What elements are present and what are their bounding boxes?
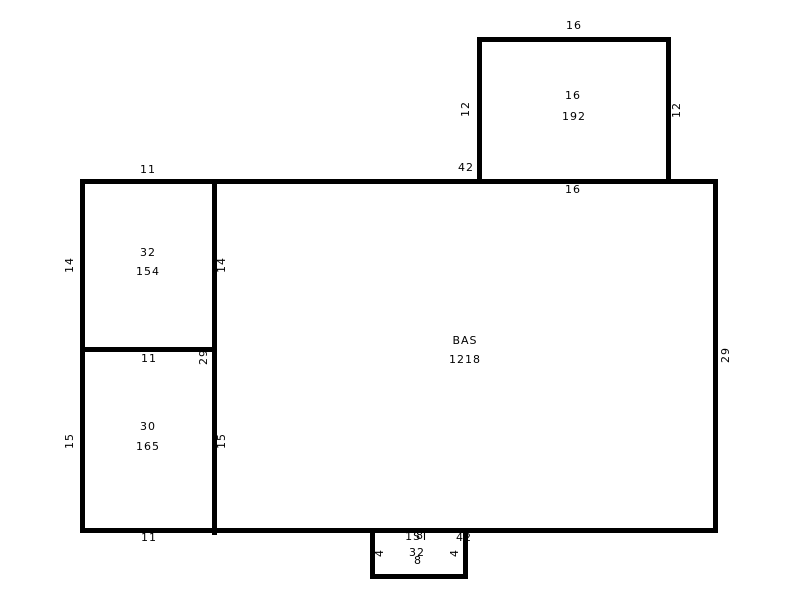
area-value-base: 1218: [449, 354, 481, 366]
dim-left-lower-left: 15: [64, 433, 76, 449]
dim-base-top: 42: [458, 162, 474, 174]
dim-upper-addition-bottom: 16: [565, 184, 581, 196]
wall-bottom-stoop: [370, 574, 468, 579]
dim-left-lower-bottom: 11: [141, 532, 157, 544]
dim-stoop-right: 4: [449, 549, 461, 557]
wall-left-divider: [212, 179, 217, 535]
floor-plan-sketch: 16 12 12 16 192 16 42 BAS 1218 29 29 42 …: [0, 0, 800, 600]
dim-upper-addition-top: 16: [566, 20, 582, 32]
wall-top-main: [80, 179, 718, 184]
area-code-stoop: 1ST: [405, 531, 429, 543]
area-code-left-upper: 32: [140, 247, 156, 259]
dim-left-upper-top: 11: [140, 164, 156, 176]
dim-left-upper-bottom: 11: [141, 353, 157, 365]
area-value-left-upper: 154: [136, 266, 160, 278]
dim-stoop-bottom: 8: [414, 555, 422, 567]
dim-base-left: 29: [198, 349, 210, 365]
area-code-upper-addition: 16: [565, 90, 581, 102]
dim-left-upper-right: 14: [216, 257, 228, 273]
area-code-base: BAS: [452, 335, 477, 347]
area-value-upper-addition: 192: [562, 111, 586, 123]
dim-base-right: 29: [720, 347, 732, 363]
wall-right-outer: [713, 179, 718, 533]
wall-bottom-main: [80, 528, 718, 533]
dim-upper-addition-right: 12: [671, 102, 683, 118]
area-value-left-lower: 165: [136, 441, 160, 453]
wall-left-outer: [80, 179, 85, 533]
dim-left-lower-right: 15: [216, 433, 228, 449]
dim-left-upper-left: 14: [64, 257, 76, 273]
wall-addition-left: [477, 37, 482, 184]
dim-stoop-left: 4: [374, 549, 386, 557]
area-code-left-lower: 30: [140, 421, 156, 433]
dim-base-bottom: 42: [456, 532, 472, 544]
dim-upper-addition-left: 12: [460, 101, 472, 117]
wall-top-addition: [477, 37, 671, 42]
